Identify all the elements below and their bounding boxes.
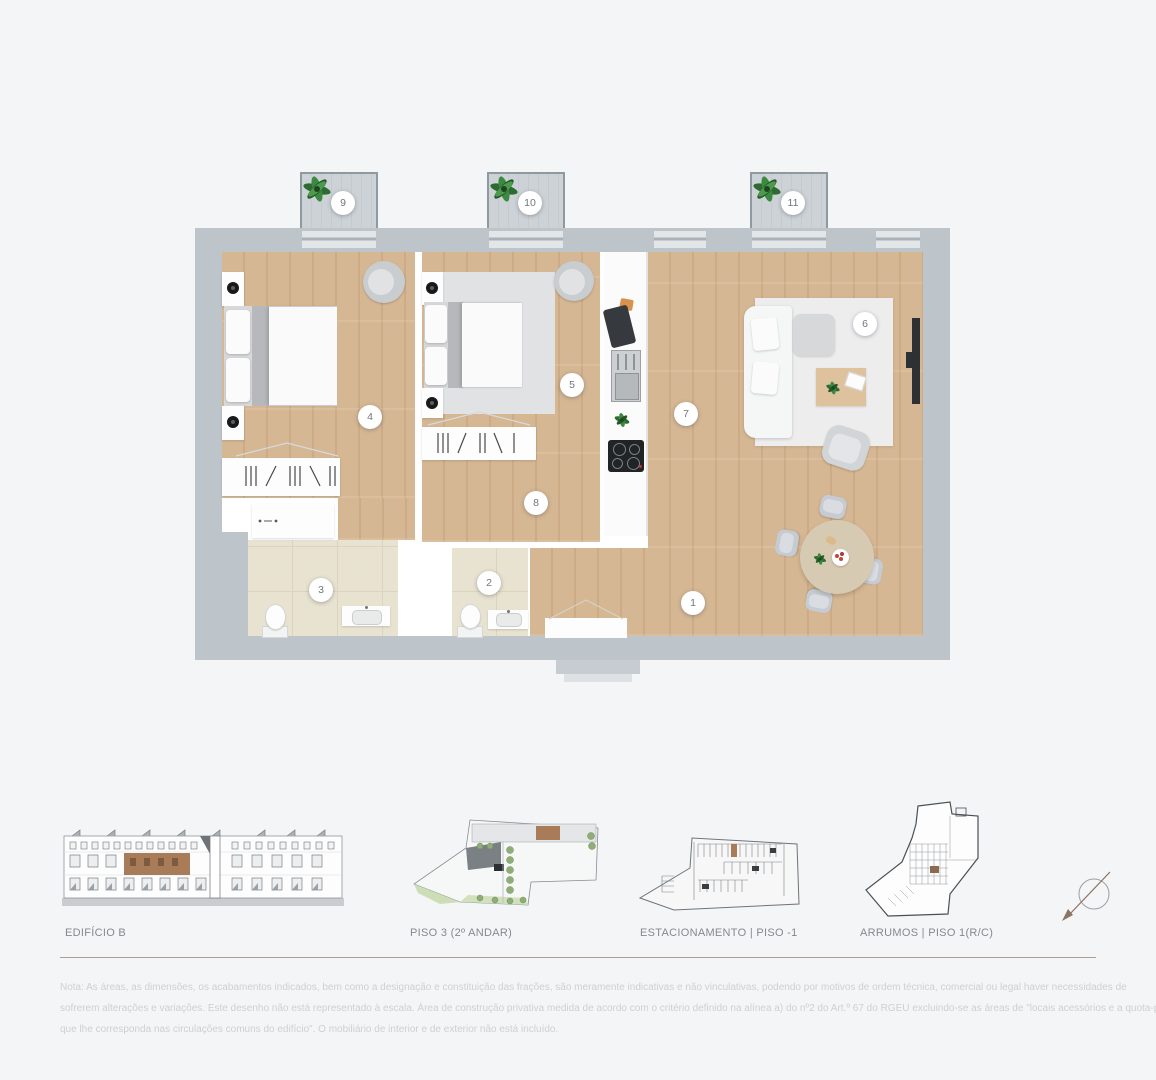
room-marker-4: 4 [358,405,382,429]
pillow [226,358,250,402]
outer-wall-left [195,228,222,660]
room-marker-1: 1 [681,591,705,615]
bedroom-armchair [363,261,405,303]
tap [507,610,510,613]
room-marker-11: 11 [781,191,805,215]
note-line-3: que lhe corresponda nas circulações comu… [60,1019,1120,1040]
wardrobe-2 [422,427,536,460]
unit-highlight [731,844,737,857]
window [876,231,920,248]
tap [365,606,368,609]
entrance-landing [545,618,627,638]
blanket-fold [252,306,269,406]
sofa-cushion [751,361,780,395]
room-marker-3: 3 [309,578,333,602]
sink-basin [496,613,522,627]
corridor-floor [338,498,415,540]
bedroom-armchair [554,261,594,301]
unit-highlight [930,866,939,873]
legend-label-floor: PISO 3 (2º ANDAR) [410,927,512,939]
note-line-2: sofrerem alterações e variações. Este de… [60,998,1120,1019]
outer-wall-bottom [195,636,950,660]
lamp-icon [227,416,239,428]
note-line-1: Nota: As áreas, as dimensões, os acabame… [60,977,1120,998]
outer-wall-right [923,228,950,660]
laundry-closet [252,504,334,538]
pillow [425,305,447,343]
disclaimer-note: Nota: As áreas, as dimensões, os acabame… [60,977,1120,1040]
brochure-page: { "plan": { "room_numbers": ["1","2","3"… [0,0,1156,1080]
wardrobe-1 [222,458,340,496]
room-marker-2: 2 [477,571,501,595]
legend-label-building: EDIFÍCIO B [65,927,126,939]
room-marker-10: 10 [518,191,542,215]
cooktop [608,440,644,472]
storage-plan-diagram [858,800,1008,922]
building-elevation-diagram [62,822,344,914]
bathroom-1-side-wall [222,532,248,636]
compass-icon [1056,868,1116,922]
duvet [269,307,337,405]
room-marker-9: 9 [331,191,355,215]
plate [832,549,849,566]
bathroom-2-closet [422,548,450,636]
room-marker-8: 8 [524,491,548,515]
lamp-icon [227,282,239,294]
room-marker-5: 5 [560,373,584,397]
lamp-icon [426,397,438,409]
ottoman [793,314,835,356]
window [302,231,376,248]
toilet [460,604,481,629]
sofa-cushion [750,317,779,352]
room-marker-7: 7 [674,402,698,426]
window [654,231,706,248]
window [489,231,563,248]
apartment-floor-plan: 1 2 3 4 5 6 7 8 9 10 11 [0,0,1156,760]
sink-basin [352,610,382,625]
room-marker-6: 6 [853,312,877,336]
pillow [425,347,447,385]
unit-highlight [536,826,560,840]
tv-mount [906,352,912,368]
pillow [226,310,250,354]
tv [912,318,920,404]
entrance-step [564,674,632,682]
toilet [265,604,286,630]
parking-plan-diagram [634,818,816,916]
window [752,231,826,248]
lamp-icon [426,282,438,294]
legend-label-parking: ESTACIONAMENTO | PISO -1 [640,927,798,939]
divider-line [60,957,1096,958]
blanket-fold [448,302,463,388]
duvet [462,303,522,387]
kitchen-sink [611,350,641,402]
entrance-step [556,660,640,674]
site-plan-diagram [408,810,608,910]
legend-label-storage: ARRUMOS | PISO 1(R/C) [860,927,993,939]
